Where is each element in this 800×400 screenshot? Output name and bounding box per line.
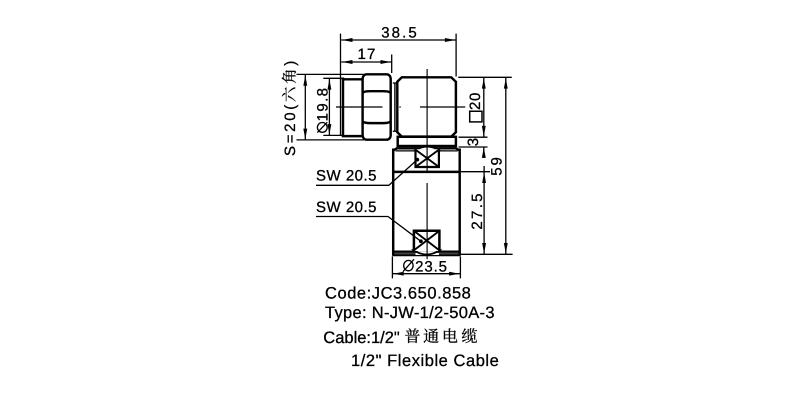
svg-text:17: 17 — [357, 46, 376, 63]
svg-text:Cable:1/2": Cable:1/2" — [323, 329, 400, 347]
svg-text:19.8: 19.8 — [315, 87, 332, 122]
svg-text:27.5: 27.5 — [469, 191, 486, 229]
svg-text:): ) — [282, 61, 299, 66]
svg-text:1/2" Flexible Cable: 1/2" Flexible Cable — [351, 352, 499, 370]
svg-text:SW 20.5: SW 20.5 — [316, 168, 377, 185]
svg-text:SW 20.5: SW 20.5 — [316, 199, 377, 216]
svg-text:3: 3 — [465, 138, 482, 146]
svg-text:20: 20 — [467, 92, 484, 110]
svg-text:Code:JC3.650.858: Code:JC3.650.858 — [325, 284, 471, 302]
svg-text:59: 59 — [489, 155, 506, 176]
svg-text:Type: N-JW-1/2-50A-3: Type: N-JW-1/2-50A-3 — [325, 304, 495, 322]
svg-text:38.5: 38.5 — [381, 25, 419, 42]
svg-text:S=20(: S=20( — [282, 102, 299, 156]
svg-text:23.5: 23.5 — [415, 258, 448, 275]
